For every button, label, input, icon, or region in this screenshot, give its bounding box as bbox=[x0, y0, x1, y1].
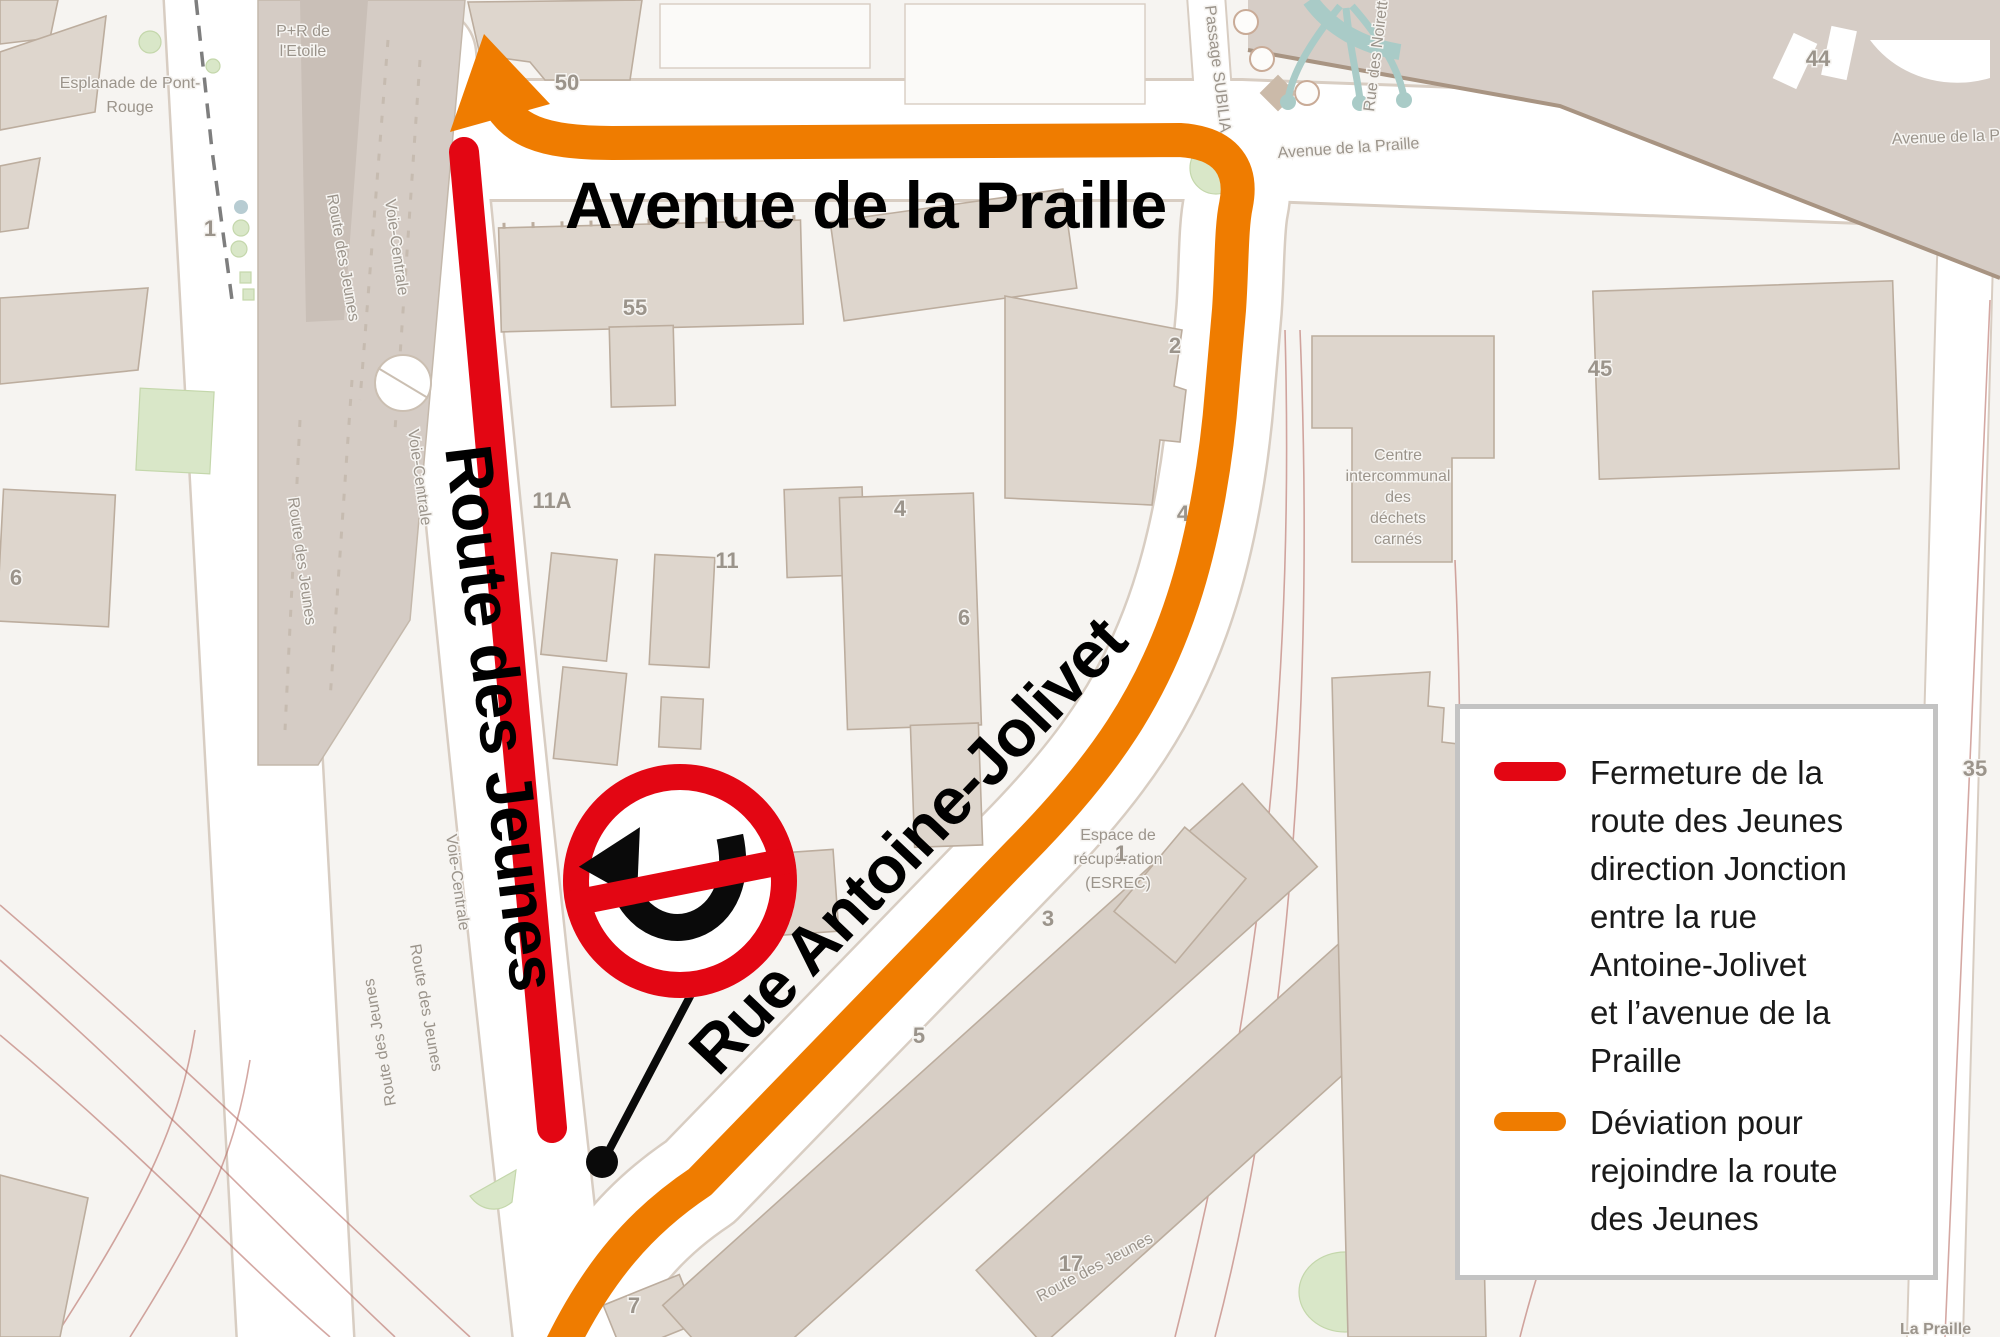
svg-text:17: 17 bbox=[1059, 1251, 1083, 1276]
sign-pointer-dot bbox=[586, 1146, 618, 1178]
label-la-praille: La Praille bbox=[1900, 1321, 1971, 1337]
svg-text:(ESREC): (ESREC) bbox=[1085, 875, 1151, 892]
tree bbox=[231, 241, 247, 257]
svg-text:11: 11 bbox=[715, 548, 738, 573]
svg-text:44: 44 bbox=[1806, 46, 1831, 71]
roadwork-deviation-map: Esplanade de Pont- Rouge P+R de l'Etoile… bbox=[0, 0, 2000, 1337]
building-11a bbox=[541, 553, 617, 661]
svg-text:1: 1 bbox=[204, 216, 216, 241]
roundabout-west bbox=[375, 355, 431, 411]
svg-text:11A: 11A bbox=[532, 488, 571, 513]
svg-text:35: 35 bbox=[1963, 756, 1987, 781]
tree bbox=[139, 31, 161, 53]
tree-outline bbox=[1234, 10, 1258, 34]
svg-text:55: 55 bbox=[623, 295, 647, 320]
svg-text:des: des bbox=[1385, 489, 1411, 506]
svg-text:intercommunal: intercommunal bbox=[1346, 468, 1451, 485]
sculpture-dot bbox=[1396, 92, 1412, 108]
green-patch-left bbox=[136, 388, 214, 474]
building bbox=[553, 667, 626, 765]
svg-text:Route des Jeunes: Route des Jeunes bbox=[406, 943, 445, 1073]
svg-text:4: 4 bbox=[894, 496, 907, 521]
svg-text:45: 45 bbox=[1588, 356, 1612, 381]
label-pr-etoile: P+R de bbox=[276, 23, 330, 40]
closure-line-sample bbox=[1494, 762, 1566, 781]
svg-text:5: 5 bbox=[913, 1023, 925, 1048]
road-right-fill bbox=[1935, 260, 1965, 1337]
legend-item-deviation: Déviation pour rejoindre la route des Je… bbox=[1494, 1099, 1913, 1243]
building bbox=[0, 158, 40, 232]
legend-box: Fermeture de la route des Jeunes directi… bbox=[1455, 704, 1938, 1280]
svg-text:50: 50 bbox=[555, 70, 579, 95]
building bbox=[659, 697, 704, 749]
tree bbox=[206, 59, 220, 73]
sculpture-dot bbox=[1280, 94, 1296, 110]
svg-text:Centre: Centre bbox=[1374, 447, 1422, 464]
deviation-line-sample bbox=[1494, 1112, 1566, 1131]
tree-outline bbox=[1295, 81, 1319, 105]
svg-text:carnés: carnés bbox=[1374, 531, 1422, 548]
building-outline bbox=[905, 4, 1145, 104]
svg-text:2: 2 bbox=[1169, 333, 1181, 358]
tree bbox=[233, 220, 249, 236]
legend-closure-text: Fermeture de la route des Jeunes directi… bbox=[1590, 749, 1847, 1085]
legend-deviation-text: Déviation pour rejoindre la route des Je… bbox=[1590, 1099, 1838, 1243]
label-avenue-de-la-praille: Avenue de la Praille bbox=[565, 168, 1166, 242]
svg-text:1: 1 bbox=[1115, 841, 1127, 866]
svg-text:3: 3 bbox=[1042, 906, 1054, 931]
blue-dot bbox=[234, 200, 248, 214]
green-triangle bbox=[470, 1170, 516, 1209]
building-55 bbox=[499, 218, 806, 410]
tree-outline bbox=[1250, 47, 1274, 71]
building bbox=[0, 288, 148, 384]
svg-text:Route des Jeunes: Route des Jeunes bbox=[361, 977, 400, 1107]
svg-text:7: 7 bbox=[628, 1293, 640, 1318]
svg-text:6: 6 bbox=[958, 605, 970, 630]
svg-text:l'Etoile: l'Etoile bbox=[280, 43, 327, 60]
green-square bbox=[243, 289, 254, 300]
building-45 bbox=[1593, 281, 1899, 479]
svg-text:déchets: déchets bbox=[1370, 510, 1426, 527]
svg-text:Rouge: Rouge bbox=[106, 99, 153, 116]
green-square bbox=[240, 272, 251, 283]
building-6 bbox=[0, 489, 115, 627]
legend-item-closure: Fermeture de la route des Jeunes directi… bbox=[1494, 749, 1913, 1085]
label-esplanade: Esplanade de Pont- bbox=[60, 75, 201, 92]
building bbox=[0, 1175, 88, 1337]
building-outline bbox=[660, 4, 870, 68]
svg-text:6: 6 bbox=[10, 565, 22, 590]
building-11 bbox=[649, 555, 715, 668]
